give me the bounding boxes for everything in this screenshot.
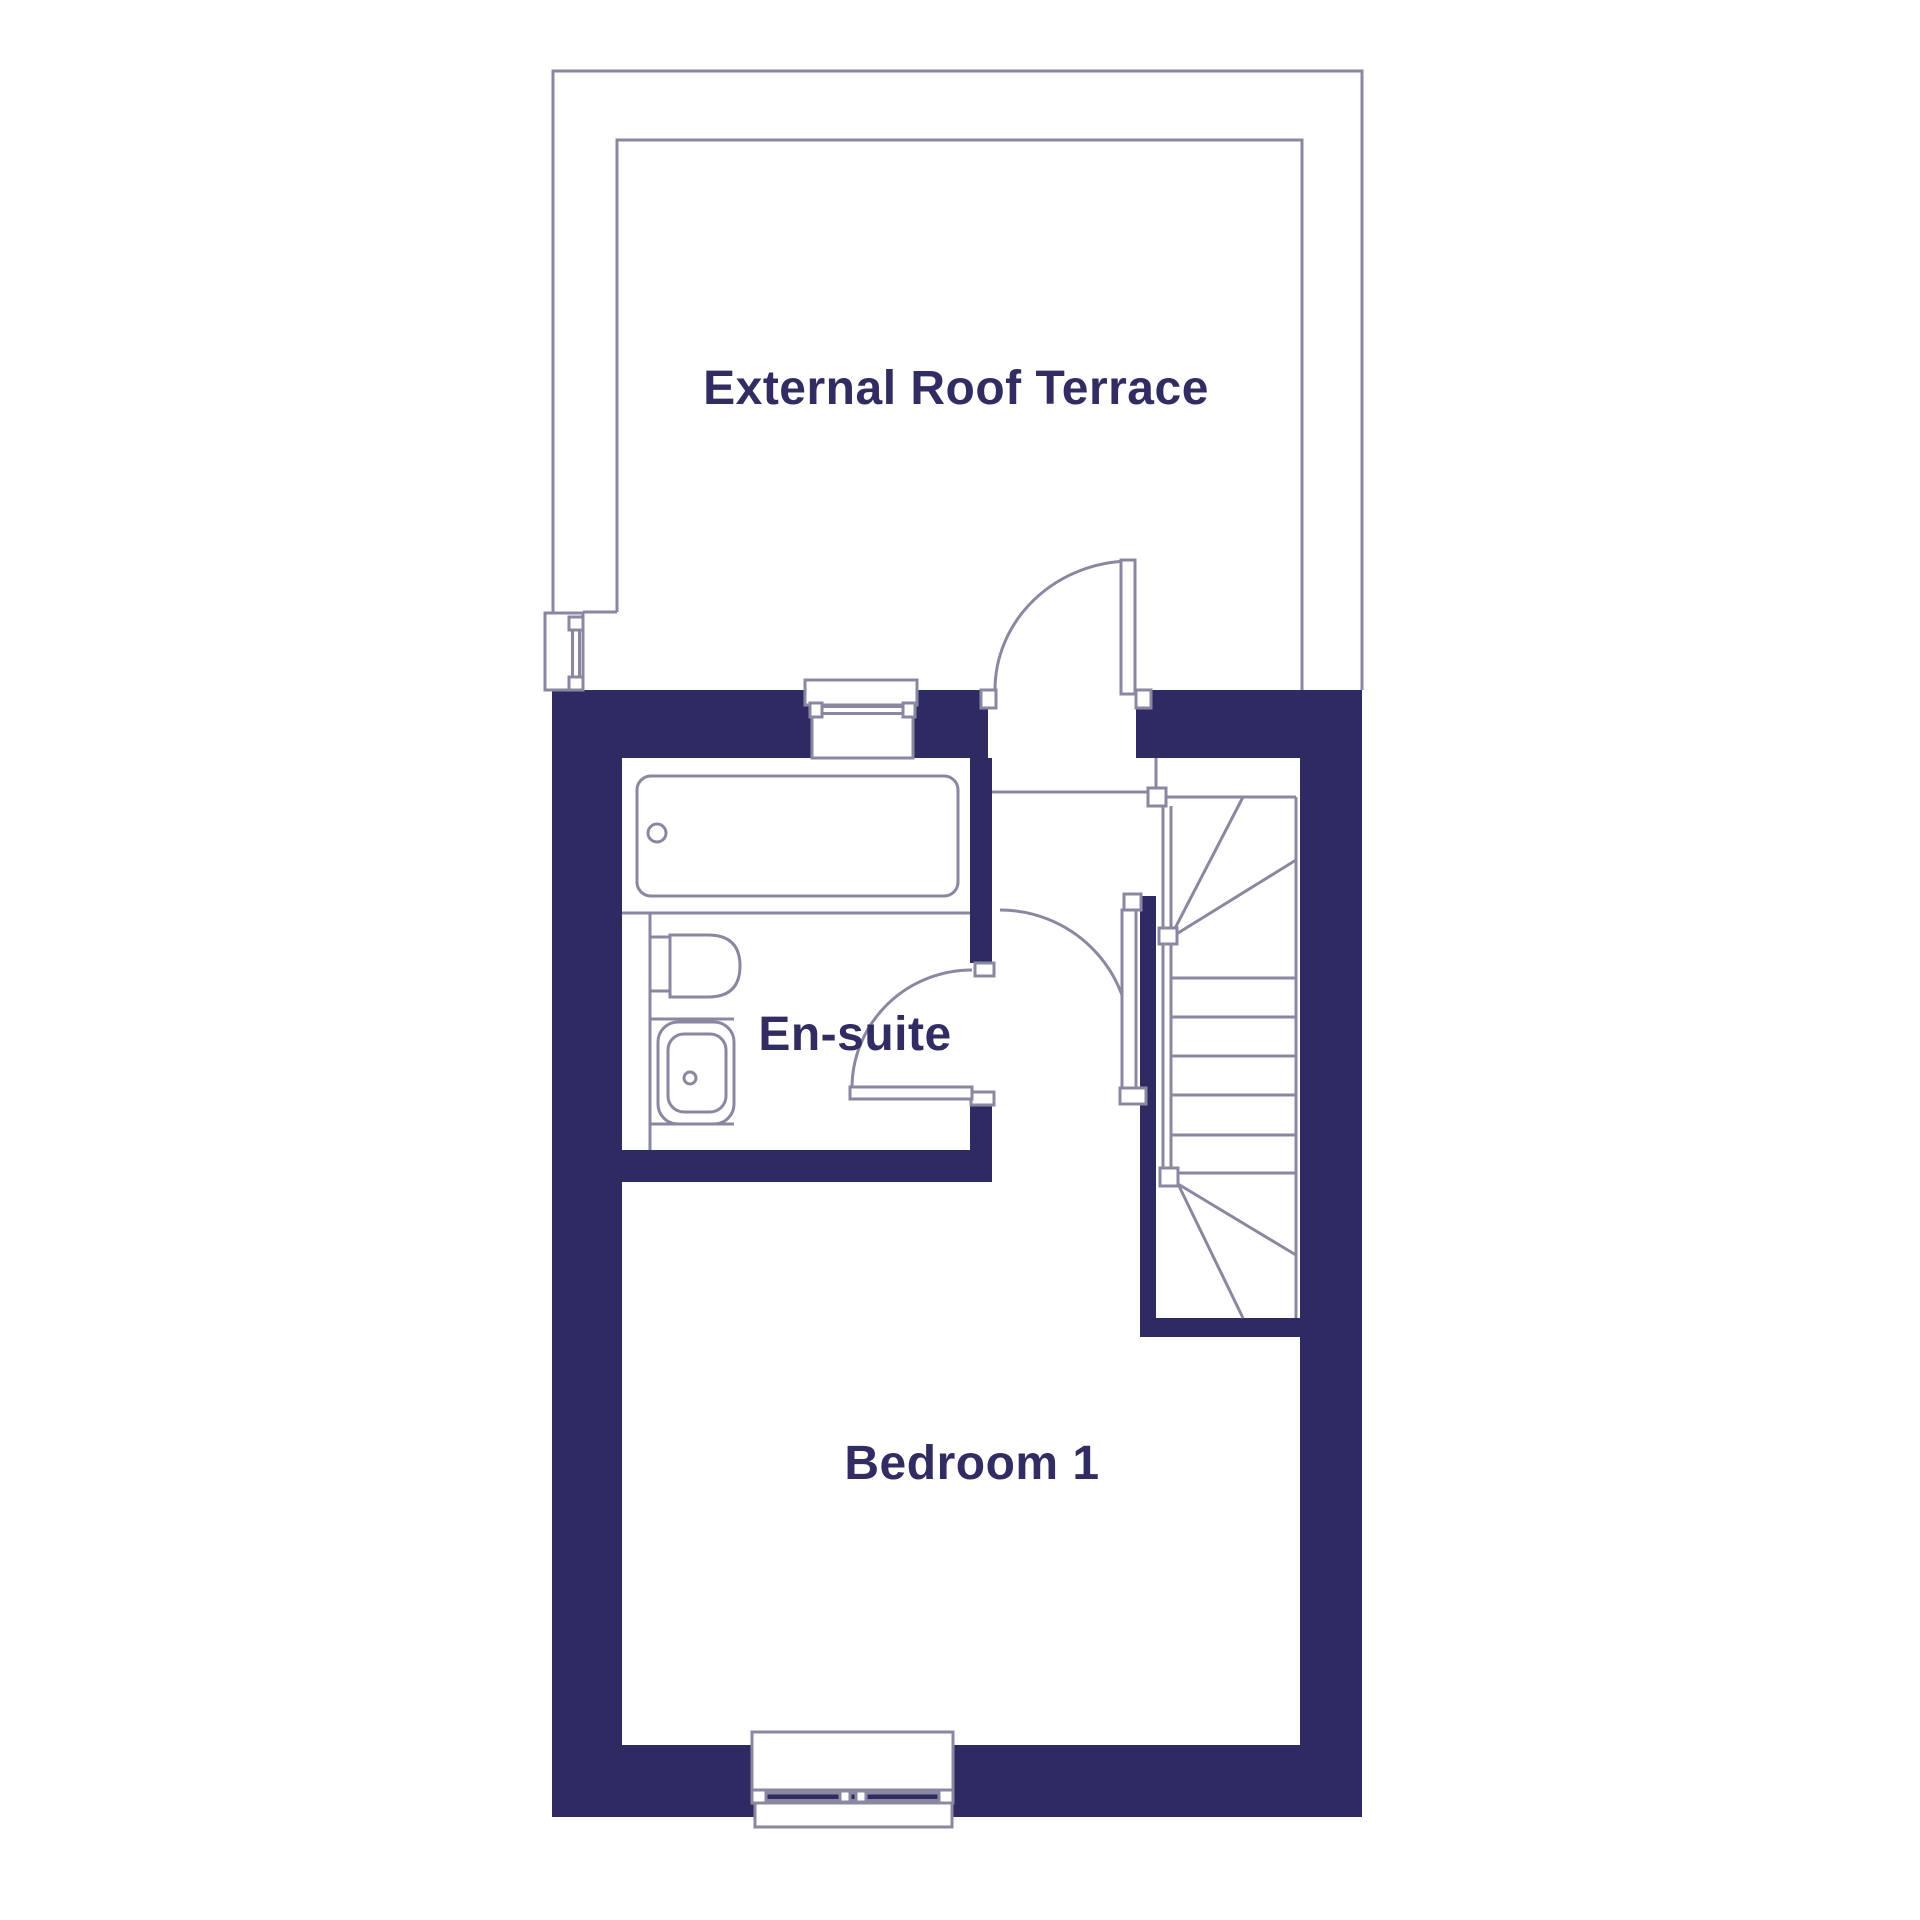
door-jamb: [1136, 690, 1151, 708]
floor-plan-page: External Roof Terrace En-suite Bedroom 1: [0, 0, 1920, 1920]
floor-plan-drawing: External Roof Terrace En-suite Bedroom 1: [0, 0, 1920, 1920]
door-jamb: [1120, 1088, 1146, 1104]
bath-icon: [637, 776, 958, 896]
toilet-cistern-icon: [650, 937, 670, 991]
staircase-icon: [1159, 797, 1296, 1318]
stair-bottom-wall: [1140, 1318, 1300, 1337]
door-jamb: [981, 690, 996, 708]
newel-post: [1160, 1168, 1178, 1186]
terrace-door: [981, 560, 1151, 708]
door-jamb: [1124, 894, 1141, 910]
window-frame-icon: [805, 680, 917, 705]
window-mullion: [840, 1791, 850, 1802]
door-swing-arc-icon: [995, 561, 1130, 690]
window-recess: [752, 1732, 953, 1790]
window-cap: [752, 1790, 766, 1803]
terrace-inner-line: [617, 140, 1302, 690]
toilet-bowl-icon: [670, 935, 740, 997]
door-leaf-icon: [1122, 910, 1136, 1088]
window-mullion: [856, 1791, 866, 1802]
stair-side-wall: [1140, 896, 1156, 1337]
bedroom-door: [1000, 894, 1146, 1104]
bottom-wall: [552, 1745, 1362, 1817]
window-cap: [569, 617, 583, 630]
window-cap: [939, 1790, 953, 1803]
window-cap: [569, 677, 583, 690]
ensuite-label: En-suite: [758, 1008, 951, 1061]
door-leaf-icon: [850, 1087, 972, 1099]
newel-post: [1159, 928, 1177, 944]
door-jamb: [975, 963, 994, 976]
door-swing-arc-icon: [1000, 910, 1130, 1040]
bedroom-window: [752, 1732, 953, 1827]
right-wall: [1300, 690, 1362, 1817]
ensuite-right-wall-upper: [970, 758, 992, 963]
bedroom-label: Bedroom 1: [844, 1437, 1099, 1490]
landing: [992, 758, 1166, 806]
window-cap: [810, 703, 822, 717]
left-wall: [552, 690, 622, 1817]
ensuite-window: [805, 680, 917, 758]
door-leaf-icon: [1121, 560, 1135, 694]
terrace-label: External Roof Terrace: [703, 362, 1209, 415]
door-jamb: [971, 1092, 994, 1105]
newel-post: [1148, 788, 1166, 806]
terrace-left-window: [545, 613, 583, 690]
window-sill: [755, 1803, 952, 1827]
ensuite-bottom-wall: [552, 1150, 992, 1182]
window-cap: [903, 703, 915, 717]
